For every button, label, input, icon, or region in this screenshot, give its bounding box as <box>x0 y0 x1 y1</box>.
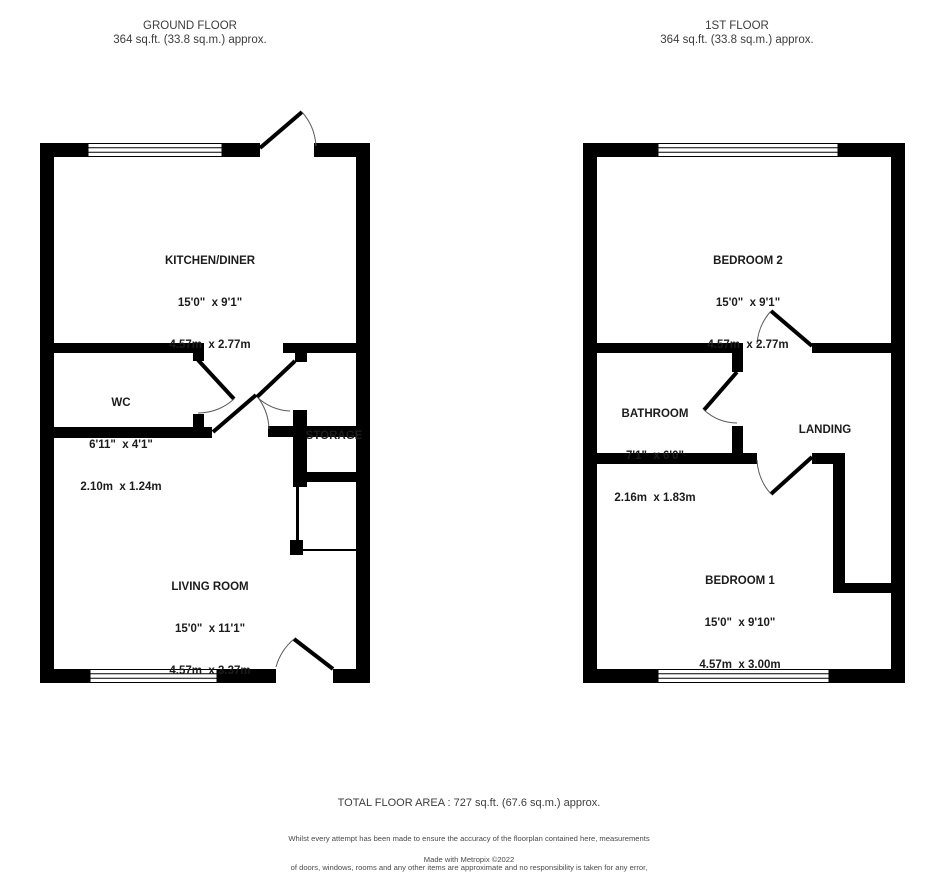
floorplan-page: GROUND FLOOR364 sq.ft. (33.8 sq.m.) appr… <box>0 0 938 879</box>
room-dims-m: 4.57m x 2.77m <box>165 338 255 352</box>
ff-bed2-landing-wall <box>812 343 891 353</box>
room-label-wc: WC 6'11" x 4'1" 2.10m x 1.24m <box>80 368 161 522</box>
first-floor-header: 1ST FLOOR364 sq.ft. (33.8 sq.m.) approx. <box>660 19 813 47</box>
ff-left-wall <box>583 143 597 683</box>
ff-jamb-2 <box>732 426 743 455</box>
ground-floor-header: GROUND FLOOR364 sq.ft. (33.8 sq.m.) appr… <box>113 19 266 47</box>
room-dims-ft: 15'0" x 9'1" <box>165 296 255 310</box>
room-dims-ft: 6'11" x 4'1" <box>80 438 161 452</box>
gf-stair-stub <box>290 540 303 555</box>
room-dims-ft: 15'0" x 9'1" <box>707 296 788 310</box>
gf-kitchen-window <box>88 144 222 157</box>
ff-stairwell-left-wall <box>833 453 845 593</box>
room-name: BEDROOM 2 <box>707 254 788 268</box>
first-floor-title: 1ST FLOOR <box>660 19 813 33</box>
ground-floor-title: GROUND FLOOR <box>113 19 266 33</box>
room-dims-ft: 7'1" x 6'0" <box>614 449 695 463</box>
gf-kitchen-door <box>257 361 295 411</box>
room-dims-ft: 15'0" x 11'1" <box>169 622 250 636</box>
room-name: LANDING <box>799 423 851 437</box>
room-name: STORAGE <box>306 429 363 443</box>
room-label-bathroom: BATHROOM 7'1" x 6'0" 2.16m x 1.83m <box>614 379 695 533</box>
gf-patio-door-opening <box>276 668 333 684</box>
ff-right-wall <box>891 143 905 683</box>
room-label-kitchen-diner: KITCHEN/DINER 15'0" x 9'1" 4.57m x 2.77m <box>165 226 255 380</box>
first-floor-area: 364 sq.ft. (33.8 sq.m.) approx. <box>660 33 813 47</box>
gf-stairs-thin-hline <box>303 549 356 551</box>
gf-understairs-wall <box>307 472 356 482</box>
ff-stairwell-bottom-wall <box>833 583 891 593</box>
total-floor-area: TOTAL FLOOR AREA : 727 sq.ft. (67.6 sq.m… <box>338 797 601 809</box>
room-label-living-room: LIVING ROOM 15'0" x 11'1" 4.57m x 3.37m <box>169 552 250 706</box>
gf-stairs-thin-line <box>296 487 299 543</box>
room-label-storage: STORAGE <box>306 401 363 471</box>
gf-front-door-opening <box>260 142 314 158</box>
room-name: KITCHEN/DINER <box>165 254 255 268</box>
room-dims-m: 2.10m x 1.24m <box>80 480 161 494</box>
disclaimer-line: of doors, windows, rooms and any other i… <box>286 863 651 873</box>
room-dims-m: 4.57m x 3.37m <box>169 664 250 678</box>
room-name: LIVING ROOM <box>169 580 250 594</box>
ground-floor-area: 364 sq.ft. (33.8 sq.m.) approx. <box>113 33 266 47</box>
disclaimer: Whilst every attempt has been made to en… <box>286 815 651 879</box>
gf-patio-door <box>276 639 333 669</box>
room-label-bedroom-2: BEDROOM 2 15'0" x 9'1" 4.57m x 2.77m <box>707 226 788 380</box>
disclaimer-line: Whilst every attempt has been made to en… <box>286 834 651 844</box>
gf-left-wall <box>40 143 54 683</box>
gf-kitchen-hall-wall <box>283 343 356 353</box>
room-dims-ft: 15'0" x 9'10" <box>699 616 780 630</box>
room-label-landing: LANDING <box>799 395 851 465</box>
room-name: WC <box>80 396 161 410</box>
room-name: BATHROOM <box>614 407 695 421</box>
room-name: BEDROOM 1 <box>699 574 780 588</box>
ff-bedroom2-window <box>658 144 838 157</box>
metropix-credit: Made with Metropix ©2022 <box>424 855 514 864</box>
room-dims-m: 4.57m x 2.77m <box>707 338 788 352</box>
gf-jamb-2 <box>295 343 307 362</box>
room-dims-m: 2.16m x 1.83m <box>614 491 695 505</box>
room-label-bedroom-1: BEDROOM 1 15'0" x 9'10" 4.57m x 3.00m <box>699 546 780 700</box>
room-dims-m: 4.57m x 3.00m <box>699 658 780 672</box>
